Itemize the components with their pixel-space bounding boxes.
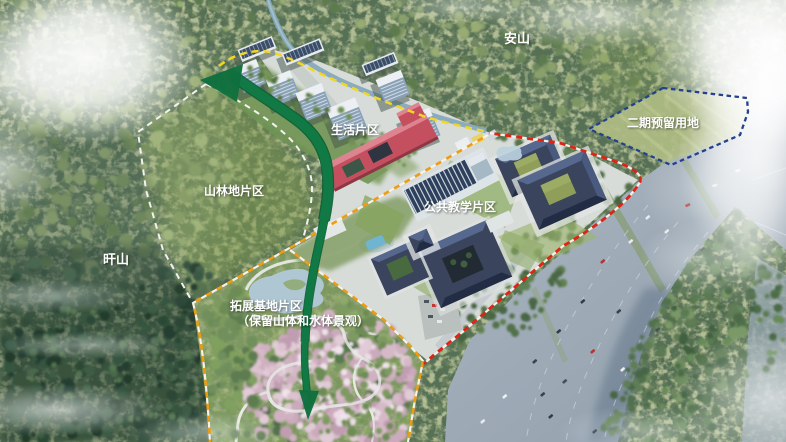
svg-text:旰山: 旰山 xyxy=(103,252,129,267)
svg-text:（保留山体和水体景观）: （保留山体和水体景观） xyxy=(237,313,369,328)
svg-text:山林地片区: 山林地片区 xyxy=(204,183,264,198)
svg-text:二期预留用地: 二期预留用地 xyxy=(627,115,699,130)
svg-text:拓展基地片区: 拓展基地片区 xyxy=(230,298,302,313)
svg-text:生活片区: 生活片区 xyxy=(331,122,379,137)
svg-text:安山: 安山 xyxy=(504,31,530,46)
svg-text:公共教学片区: 公共教学片区 xyxy=(424,199,496,214)
